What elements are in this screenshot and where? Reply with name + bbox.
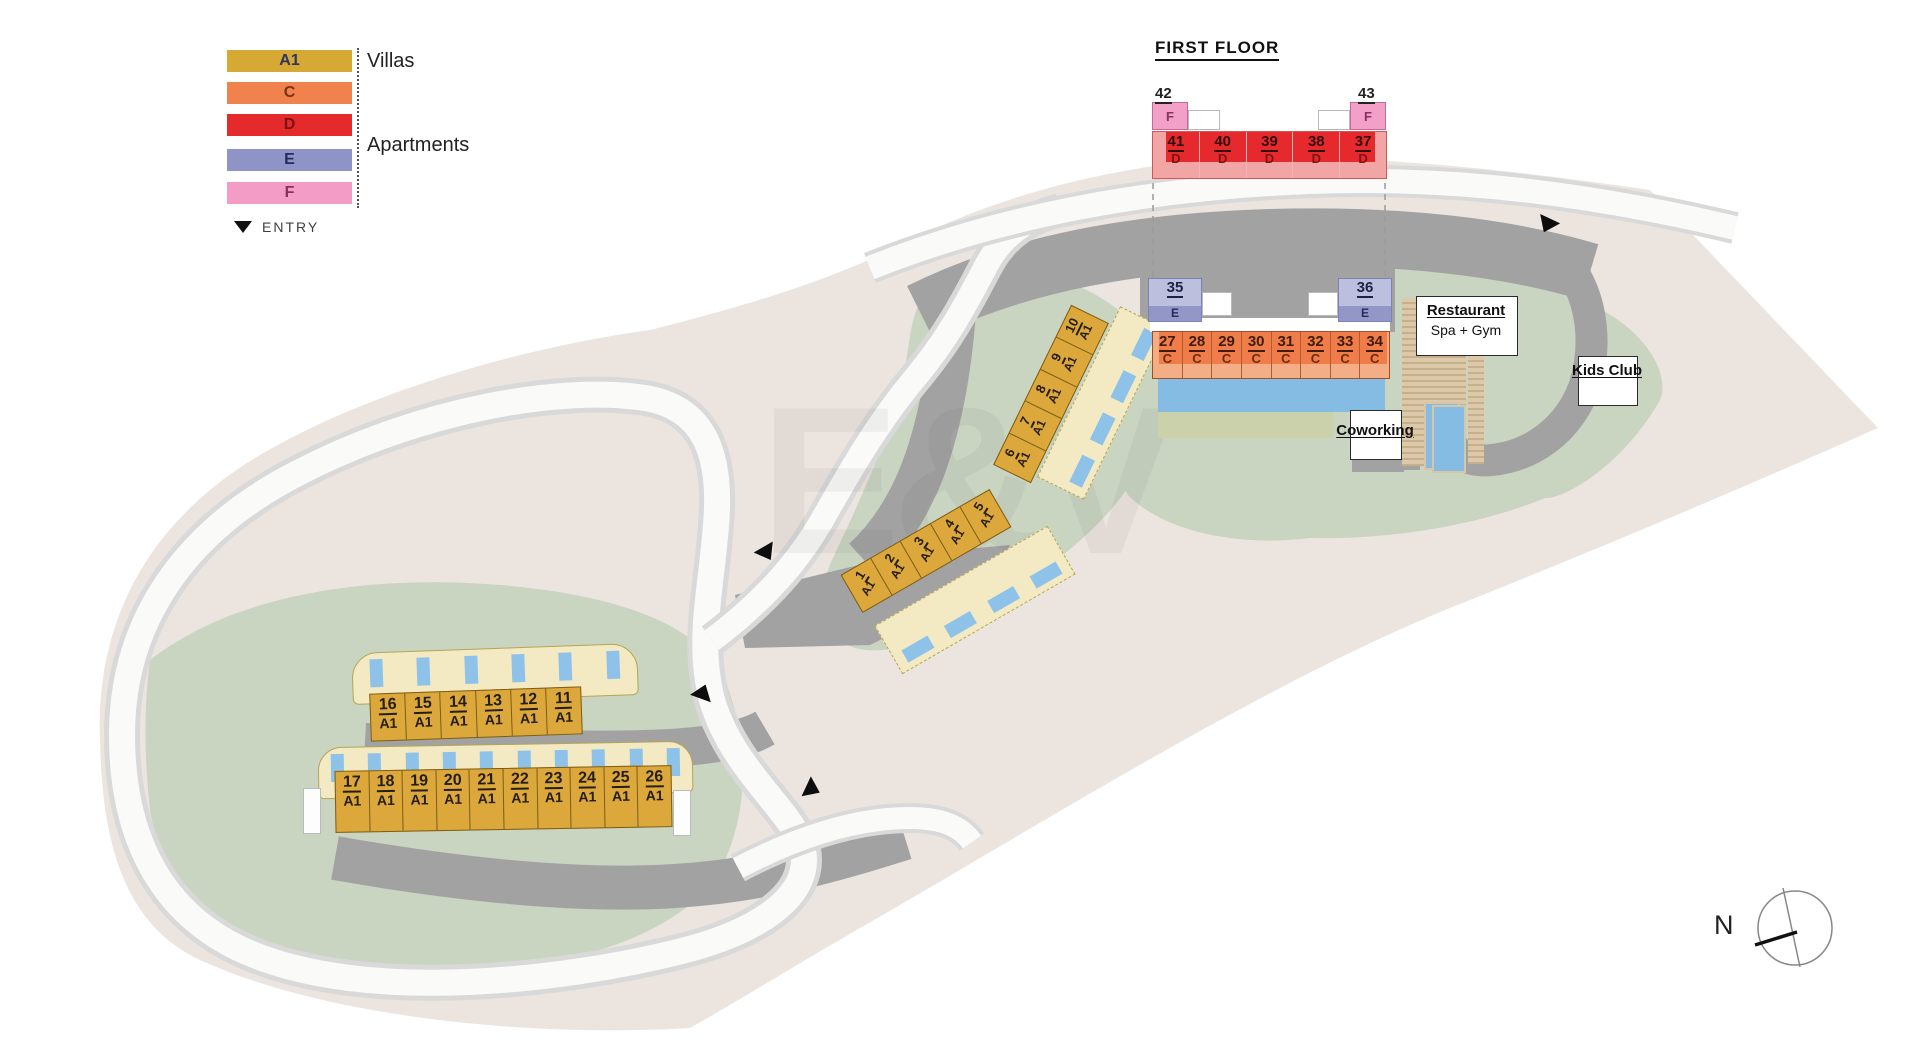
unit-number: 32 [1307,334,1324,352]
unit-26[interactable]: 26A1 [637,766,672,827]
entry-legend: ENTRY [234,219,319,235]
unit-type-35: E [1149,306,1201,321]
first-floor-title: FIRST FLOOR [1155,38,1279,61]
unit-type: A1 [1030,418,1049,438]
unit-type: C [1370,352,1379,367]
unit-number: 18 [377,773,395,793]
compass [1740,875,1860,985]
unit-type: C [1251,352,1260,367]
private-pool [511,654,525,682]
lawn-strip [1158,412,1333,438]
unit-number: 19 [410,772,428,792]
unit-type: A1 [414,714,432,731]
unit-type: A1 [918,544,938,564]
private-pool [559,652,573,680]
unit-type: A1 [444,791,462,807]
legend-swatch-a1: A1 [227,50,352,72]
entry-label: ENTRY [262,219,319,235]
unit-type: A1 [578,789,596,805]
unit-13[interactable]: 13A1 [475,690,512,737]
legend-swatch-f: F [227,182,352,204]
unit-35[interactable]: 35 E [1148,278,1202,322]
legend-code-c: C [284,84,296,102]
private-pool [464,656,478,684]
unit-41[interactable]: 41D [1153,132,1199,178]
unit-type: A1 [1077,323,1096,343]
stair-notch [1202,292,1232,316]
unit-20[interactable]: 20A1 [435,770,470,831]
unit-number: 20 [444,772,462,792]
unit-number: 25 [612,769,630,789]
d-units: 41D40D39D38D37D [1153,132,1386,178]
unit-30[interactable]: 30C [1241,332,1271,378]
unit-type: D [1358,152,1367,167]
private-pool [1030,561,1063,588]
unit-32[interactable]: 32C [1300,332,1330,378]
unit-type: A1 [511,790,529,806]
unit-36[interactable]: 36 E [1338,278,1392,322]
unit-number: 40 [1214,134,1231,152]
c-apartments-band: 27C28C29C30C31C32C33C34C [1152,331,1390,379]
compass-chord [1783,888,1800,967]
unit-43[interactable]: F [1350,102,1386,130]
private-pool [944,611,977,638]
unit-type: A1 [1061,354,1080,374]
unit-type: A1 [377,792,395,808]
stair-notch [1308,292,1338,316]
legend-apartments-label: Apartments [367,134,469,157]
entry-triangle-icon [234,221,252,233]
unit-type: A1 [478,790,496,806]
unit-type-36: E [1339,306,1391,321]
villas-row-17-26: 17A118A119A120A121A122A123A124A125A126A1 [334,765,672,833]
legend-villas-label: Villas [367,50,414,73]
unit-19[interactable]: 19A1 [402,770,437,831]
private-pool [901,636,934,663]
unit-type: A1 [410,792,428,808]
unit-39[interactable]: 39D [1246,132,1293,178]
compass-north-label: N [1714,910,1734,941]
private-pool [1110,371,1136,404]
unit-type: A1 [555,709,573,726]
unit-type: A1 [948,527,968,547]
unit-33[interactable]: 33C [1330,332,1360,378]
unit-29[interactable]: 29C [1211,332,1241,378]
legend-code-f: F [285,184,295,202]
unit-27[interactable]: 27C [1153,332,1182,378]
unit-number-43: 43 [1358,85,1375,104]
legend-code-a1: A1 [279,52,299,70]
unit-type: D [1218,152,1227,167]
unit-number: 21 [477,771,495,791]
unit-type: A1 [646,787,664,803]
unit-38[interactable]: 38D [1292,132,1339,178]
unit-number-36: 36 [1357,280,1374,298]
unit-type: A1 [449,713,467,730]
unit-number-42: 42 [1155,85,1172,104]
unit-40[interactable]: 40D [1199,132,1246,178]
private-pool [1069,455,1095,488]
unit-number: 23 [544,770,562,790]
unit-type: C [1311,352,1320,367]
unit-type: A1 [977,510,997,530]
compass-circle [1758,891,1832,965]
unit-number: 39 [1261,134,1278,152]
unit-28[interactable]: 28C [1182,332,1212,378]
private-pool [1090,413,1116,446]
legend-code-d: D [284,116,296,134]
unit-type: A1 [888,561,908,581]
first-floor-d-band: 41D40D39D38D37D [1152,131,1387,179]
unit-number: 11 [555,690,573,710]
unit-number: 31 [1277,334,1294,352]
unit-12[interactable]: 12A1 [510,689,547,736]
unit-25[interactable]: 25A1 [603,767,638,828]
unit-number: 27 [1159,334,1176,352]
unit-16[interactable]: 16A1 [370,693,406,740]
unit-type: C [1163,352,1172,367]
unit-18[interactable]: 18A1 [368,771,403,832]
unit-type: A1 [379,715,397,732]
unit-number: 33 [1337,334,1354,352]
unit-number: 22 [511,771,529,791]
legend-swatch-c: C [227,82,352,104]
private-pool [606,651,620,679]
coworking-pool [1432,405,1466,473]
unit-34[interactable]: 34C [1359,332,1389,378]
unit-type: A1 [1046,386,1065,406]
unit-number: 17 [343,773,361,793]
unit-type: C [1222,352,1231,367]
stair-notch [1318,110,1350,130]
unit-number: 24 [578,769,596,789]
garage-block [303,788,321,834]
unit-11[interactable]: 11A1 [545,687,582,734]
unit-42[interactable]: F [1152,102,1188,130]
unit-number: 38 [1308,134,1325,152]
main-pool [1158,377,1385,412]
restaurant-label: Restaurant [1416,302,1516,319]
unit-number: 15 [414,695,432,715]
legend-bracket [357,48,359,208]
private-pool [987,586,1020,613]
stair-notch [1188,110,1220,130]
site-plan: E&V A1 C D E F Villas Apartments ENTRY F… [0,0,1920,1048]
private-pool [417,657,431,685]
unit-number: 13 [484,692,502,712]
unit-type: D [1312,152,1321,167]
unit-23[interactable]: 23A1 [536,768,571,829]
compass-north-needle [1755,932,1797,945]
unit-type: A1 [1015,450,1034,470]
unit-number-35: 35 [1167,280,1184,298]
unit-number: 16 [379,696,397,716]
unit-15[interactable]: 15A1 [404,692,441,739]
unit-number: 29 [1218,334,1235,352]
unit-number: 12 [519,691,537,711]
unit-type: D [1265,152,1274,167]
unit-type: C [1192,352,1201,367]
unit-type: C [1281,352,1290,367]
coworking-label: Coworking [1318,422,1432,439]
unit-number: 34 [1366,334,1383,352]
unit-number: 41 [1168,134,1185,152]
terrace-steps [1468,356,1484,464]
unit-number: 14 [449,693,467,713]
unit-type: A1 [612,788,630,804]
unit-31[interactable]: 31C [1271,332,1301,378]
unit-type: A1 [545,789,563,805]
unit-14[interactable]: 14A1 [440,691,477,738]
c-units: 27C28C29C30C31C32C33C34C [1153,332,1389,378]
unit-type: A1 [485,711,503,728]
unit-37[interactable]: 37D [1339,132,1386,178]
unit-type: A1 [343,793,361,809]
legend-swatch-e: E [227,149,352,171]
unit-22[interactable]: 22A1 [502,768,537,829]
kids-club-label: Kids Club [1552,362,1662,379]
unit-type: D [1171,152,1180,167]
unit-type: C [1340,352,1349,367]
unit-type: A1 [859,578,879,598]
unit-24[interactable]: 24A1 [570,767,605,828]
villas-row-16-11: 16A115A114A113A112A111A1 [369,686,583,741]
unit-21[interactable]: 21A1 [469,769,504,830]
legend-swatch-d: D [227,114,352,136]
unit-type-43: F [1364,109,1372,124]
unit-type-42: F [1166,109,1174,124]
unit-number: 30 [1248,334,1265,352]
unit-number: 37 [1355,134,1372,152]
spa-gym-label: Spa + Gym [1416,322,1516,338]
unit-type: A1 [520,710,538,727]
legend-code-e: E [284,151,295,169]
unit-number: 28 [1189,334,1206,352]
unit-number: 26 [645,768,663,788]
garage-block [673,790,691,836]
unit-17[interactable]: 17A1 [336,771,370,832]
private-pool [370,659,384,687]
